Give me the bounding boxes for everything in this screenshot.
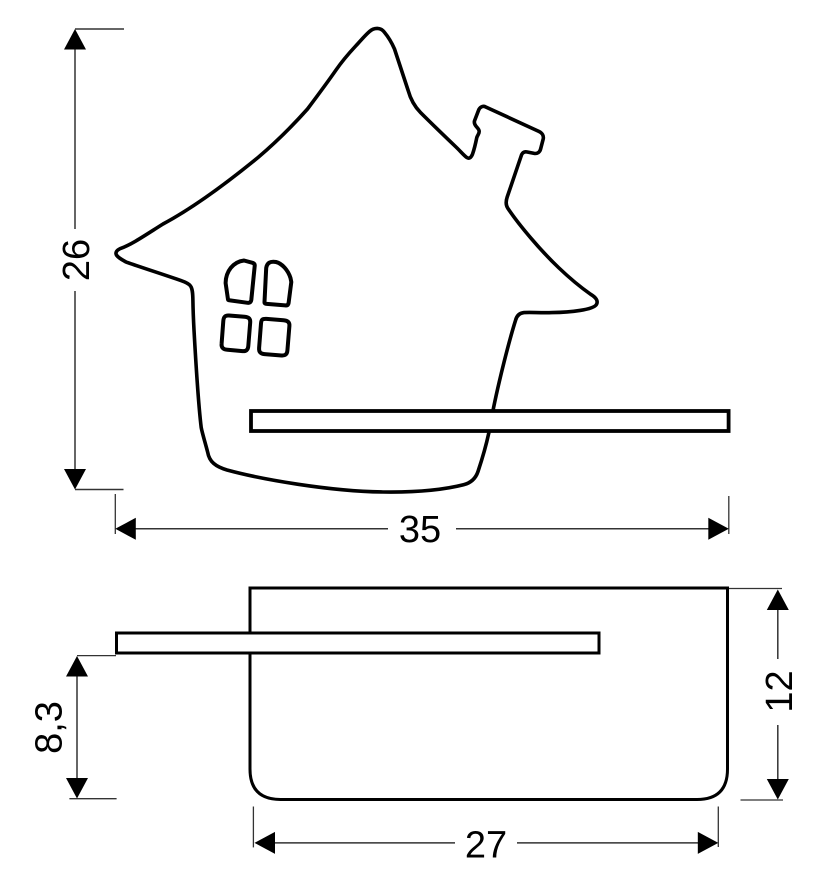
svg-text:8,3: 8,3 xyxy=(29,701,71,754)
svg-text:12: 12 xyxy=(759,670,801,712)
svg-text:26: 26 xyxy=(56,239,98,281)
svg-text:27: 27 xyxy=(465,825,507,867)
svg-text:35: 35 xyxy=(399,509,441,551)
